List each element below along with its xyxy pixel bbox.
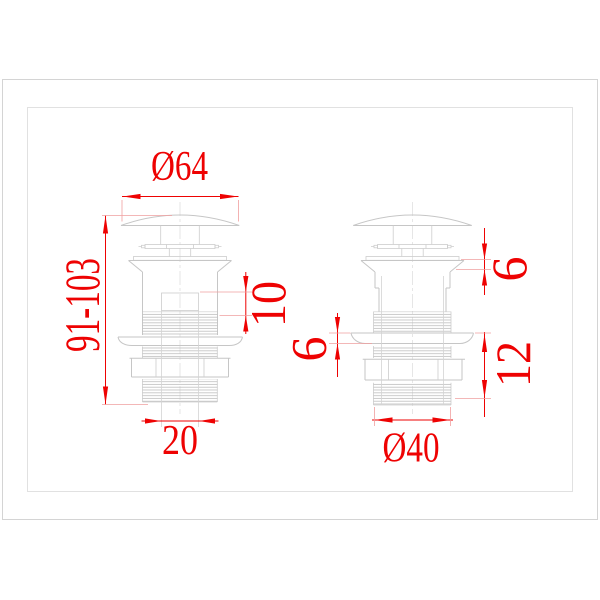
right-threads-upper xyxy=(374,312,452,334)
right-view-drawing xyxy=(351,202,474,414)
drawing-canvas: Ø64 91-103 10 20 xyxy=(0,0,600,600)
dim-outlet-bore: 20 xyxy=(142,418,219,464)
right-threads-lower xyxy=(374,383,452,405)
right-threads-middle xyxy=(374,346,452,358)
left-view-drawing xyxy=(118,202,243,427)
dim-label-overflow-section: 10 xyxy=(240,281,296,327)
dim-label-thread-diameter: Ø40 xyxy=(383,426,440,472)
dim-label-flange-thickness: 6 xyxy=(281,337,337,362)
left-threads-lower xyxy=(143,379,218,402)
dim-label-cap-body-gap: 6 xyxy=(481,257,537,282)
dim-label-outlet-bore: 20 xyxy=(162,418,198,464)
dim-overall-height: 91-103 xyxy=(54,216,172,405)
right-locknut xyxy=(363,359,465,380)
dim-mount-section: 12 xyxy=(455,332,541,417)
dim-thread-diameter: Ø40 xyxy=(372,407,453,472)
dim-label-overall-height: 91-103 xyxy=(54,258,110,352)
dim-cap-body-gap: 6 xyxy=(456,228,537,295)
technical-drawing: Ø64 91-103 10 20 xyxy=(0,0,600,600)
dim-label-mount-section: 12 xyxy=(485,341,541,387)
left-threads-upper xyxy=(143,312,218,336)
left-threads-middle xyxy=(143,347,218,359)
dim-label-cap-diameter: Ø64 xyxy=(151,144,208,190)
